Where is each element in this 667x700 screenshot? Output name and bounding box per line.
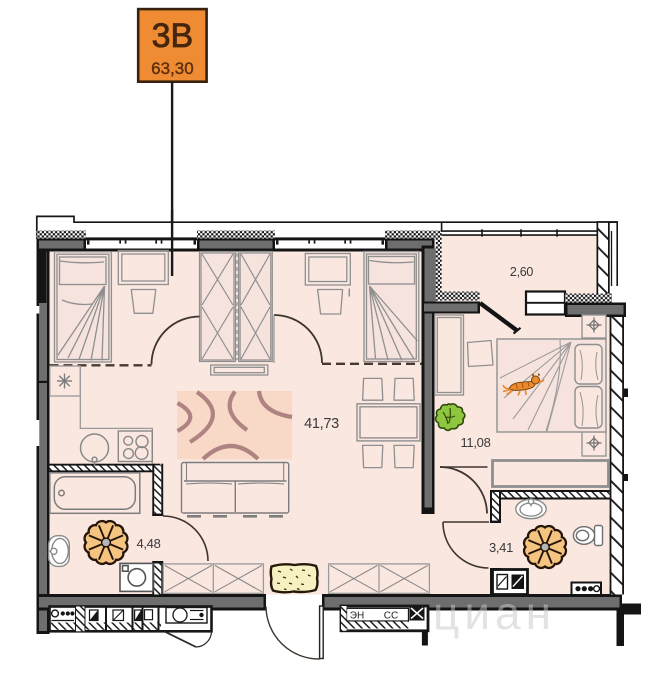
svg-text:3В: 3В <box>152 17 194 55</box>
svg-text:63,30: 63,30 <box>151 59 194 78</box>
svg-text:11,08: 11,08 <box>460 435 490 450</box>
svg-text:41,73: 41,73 <box>304 416 339 432</box>
svg-text:2,60: 2,60 <box>510 265 533 279</box>
svg-text:циан: циан <box>433 587 556 639</box>
svg-text:ЭН: ЭН <box>350 611 364 622</box>
svg-text:СС: СС <box>384 611 398 622</box>
svg-text:3,41: 3,41 <box>489 540 513 555</box>
svg-text:4,48: 4,48 <box>136 536 160 551</box>
